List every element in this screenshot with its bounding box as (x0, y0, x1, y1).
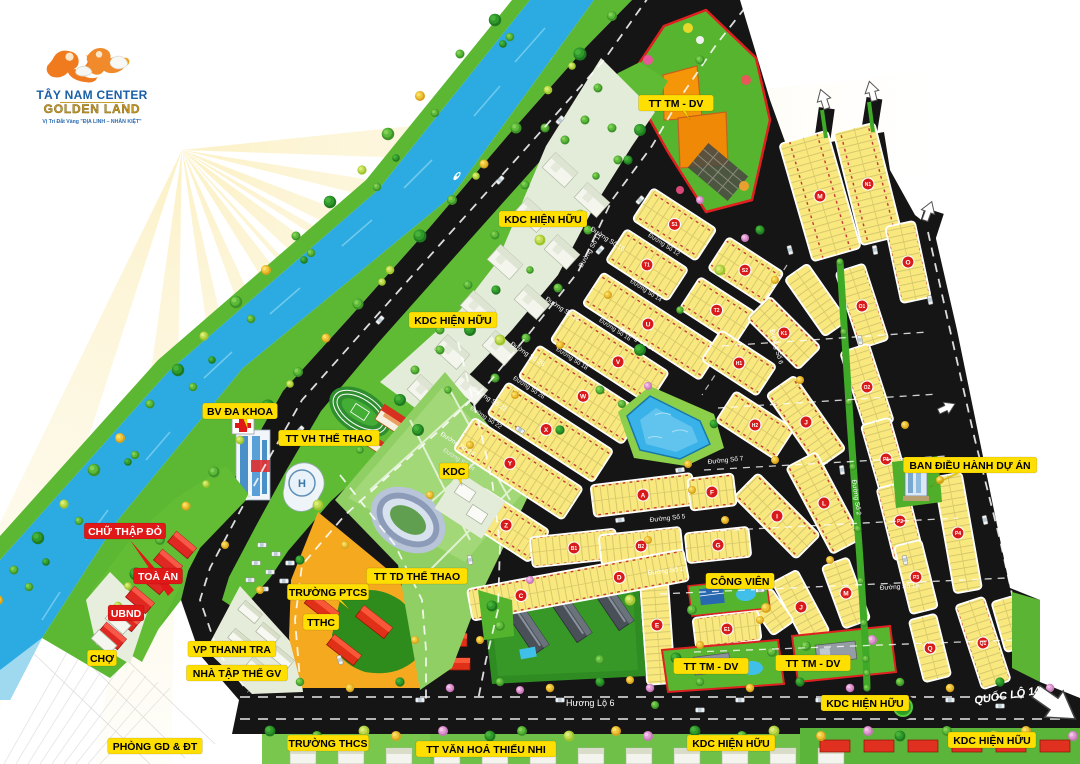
svg-text:M: M (843, 590, 848, 597)
svg-text:H2: H2 (752, 423, 759, 429)
svg-text:T1: T1 (644, 263, 650, 269)
svg-text:TT TM - DV: TT TM - DV (684, 661, 739, 673)
svg-text:J: J (804, 419, 808, 426)
svg-text:O1: O1 (859, 304, 866, 310)
svg-text:CHỢ: CHỢ (90, 653, 114, 665)
svg-text:TT TM - DV: TT TM - DV (649, 98, 704, 110)
svg-text:NHÀ TẬP THỂ GV: NHÀ TẬP THỂ GV (193, 667, 281, 680)
svg-text:PHÒNG GD & ĐT: PHÒNG GD & ĐT (113, 740, 198, 753)
svg-text:UBND: UBND (111, 608, 142, 620)
svg-text:VP THANH TRA: VP THANH TRA (193, 644, 271, 656)
svg-text:Vị Trí Đắt Vàng "ĐỊA LINH – NH: Vị Trí Đắt Vàng "ĐỊA LINH – NHÂN KIỆT" (42, 117, 142, 125)
svg-text:CÔNG VIÊN: CÔNG VIÊN (711, 575, 770, 588)
svg-text:G: G (715, 542, 720, 549)
svg-text:BV ĐA KHOA: BV ĐA KHOA (207, 406, 274, 418)
svg-text:TRƯỜNG THCS: TRƯỜNG THCS (289, 737, 368, 750)
svg-text:N1: N1 (865, 182, 872, 188)
svg-text:Z: Z (504, 522, 508, 529)
svg-text:Q: Q (927, 645, 932, 652)
svg-text:L: L (822, 500, 826, 507)
svg-text:U: U (646, 321, 651, 328)
svg-text:TÂY NAM CENTER: TÂY NAM CENTER (36, 87, 147, 102)
svg-text:D: D (617, 575, 622, 582)
svg-text:TOÀ ÁN: TOÀ ÁN (138, 570, 178, 583)
svg-text:K1: K1 (781, 331, 788, 337)
svg-text:KDC HIỆN HỮU: KDC HIỆN HỮU (692, 737, 770, 750)
svg-text:TT VĂN HOÁ THIẾU NHI: TT VĂN HOÁ THIẾU NHI (426, 743, 546, 756)
svg-text:CHỮ THẬP ĐỎ: CHỮ THẬP ĐỎ (88, 525, 162, 538)
svg-text:BAN ĐIỀU HÀNH DỰ ÁN: BAN ĐIỀU HÀNH DỰ ÁN (909, 459, 1030, 472)
svg-text:W: W (580, 394, 587, 401)
svg-text:C: C (519, 593, 524, 600)
svg-text:KDC HIỆN HỮU: KDC HIỆN HỮU (826, 697, 904, 710)
svg-text:KDC: KDC (443, 466, 466, 478)
svg-text:H1: H1 (736, 361, 743, 367)
svg-text:GOLDEN LAND: GOLDEN LAND (44, 102, 141, 116)
svg-text:Hương Lộ 6: Hương Lộ 6 (566, 698, 614, 708)
svg-text:KDC HIỆN HỮU: KDC HIỆN HỮU (953, 734, 1031, 747)
svg-text:TRƯỜNG PTCS: TRƯỜNG PTCS (289, 586, 367, 599)
svg-text:KDC HIỆN HỮU: KDC HIỆN HỮU (414, 314, 492, 327)
svg-text:S1: S1 (671, 222, 677, 228)
svg-text:X: X (544, 427, 549, 434)
svg-text:M: M (817, 193, 822, 200)
svg-text:E1: E1 (724, 627, 730, 633)
svg-text:TT TM - DV: TT TM - DV (786, 658, 841, 670)
svg-text:P4: P4 (955, 531, 961, 537)
svg-text:P2: P2 (897, 519, 903, 525)
svg-text:TT VH THỂ THAO: TT VH THỂ THAO (286, 432, 373, 445)
svg-text:V: V (616, 359, 621, 366)
svg-text:B2: B2 (638, 544, 645, 550)
svg-text:E: E (655, 622, 660, 629)
svg-text:F: F (710, 489, 714, 496)
svg-text:O: O (905, 259, 910, 266)
svg-text:B1: B1 (571, 546, 578, 552)
svg-text:J: J (799, 604, 803, 611)
svg-text:TTHC: TTHC (307, 617, 335, 629)
svg-text:TT TD THỂ THAO: TT TD THỂ THAO (374, 570, 460, 583)
svg-text:T2: T2 (714, 308, 720, 314)
svg-text:S2: S2 (742, 268, 748, 274)
svg-text:I: I (776, 513, 778, 520)
svg-text:H: H (298, 478, 306, 490)
svg-text:A: A (641, 492, 646, 499)
svg-text:O2: O2 (864, 385, 871, 391)
svg-text:P3: P3 (913, 575, 919, 581)
svg-text:KDC HIỆN HỮU: KDC HIỆN HỮU (504, 213, 582, 226)
svg-text:Y: Y (508, 461, 513, 468)
